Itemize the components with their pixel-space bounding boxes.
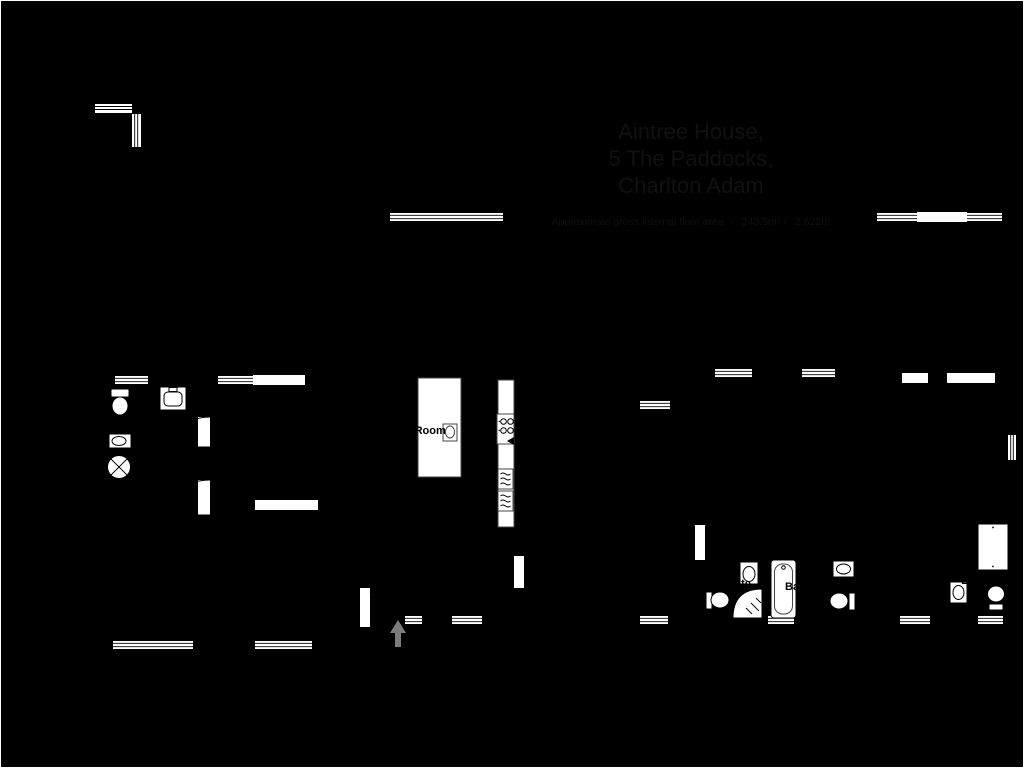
- labels-layer: Aintree House, 5 The Paddocks, Charlton …: [0, 0, 1024, 768]
- room-label-sitting-room: Sitting Room 4.43 x 4.30m 14'6" x 14'1": [249, 571, 317, 613]
- room-label-bedroom-left: Bedroom 2.91 x 4.78m 9'6" x 15'8": [621, 505, 685, 547]
- room-label-ensuite-right: Ensuite: [961, 574, 1001, 588]
- room-label-studio: Studio 3.66 x 6.69m 12'0" x 21'11": [38, 215, 104, 257]
- room-label-bedroom-mid-left: Bedroom 2.65 x 3.85m 8'8" x 12'7": [720, 437, 784, 479]
- title-line: Charlton Adam: [609, 172, 774, 199]
- room-label-bathroom: Bathroom: [785, 580, 837, 594]
- compass-west-label: W: [246, 193, 257, 205]
- room-label-bedroom-main: Bedroom 4.46 x 4.67m 14'8" x 15'4": [904, 292, 968, 334]
- room-label-utility: Utility: [160, 417, 191, 431]
- title-line: Aintree House,: [609, 118, 774, 145]
- room-label-garage: Garage 3.00 x 5.97m 9'10" x 19'7": [122, 545, 186, 587]
- floorplan-page: Aintree House, 5 The Paddocks, Charlton …: [0, 0, 1024, 768]
- page-title: Aintree House, 5 The Paddocks, Charlton …: [609, 118, 774, 199]
- first-floor-label: First Floor Area: 102.8 m² ... 1107 ft²: [748, 638, 873, 666]
- studio-area-label: Area: 24.4 m² ... 263 ft²: [25, 349, 138, 363]
- gross-area-note: Approximate gross internal floor area - …: [552, 216, 831, 228]
- room-label-ensuite-left: Ensuite: [711, 577, 751, 591]
- room-label-kitchen: Kitchen / Dining / Living Room 9.30 x 9.…: [286, 424, 446, 469]
- ground-floor-label: Ground Floor Area: 116.3 m² ... 1252 ft²: [408, 637, 533, 665]
- room-label-bedroom-mid-right: Bedroom 2.99 x 3.83m 9'10" x 12'7": [816, 435, 880, 477]
- compass-north-label: N: [270, 171, 278, 183]
- compass-east-label: E: [293, 194, 301, 206]
- title-line: 5 The Paddocks,: [609, 145, 774, 172]
- compass-south-label: S: [270, 212, 278, 224]
- room-label-boot-room: Boot Room: [476, 556, 507, 582]
